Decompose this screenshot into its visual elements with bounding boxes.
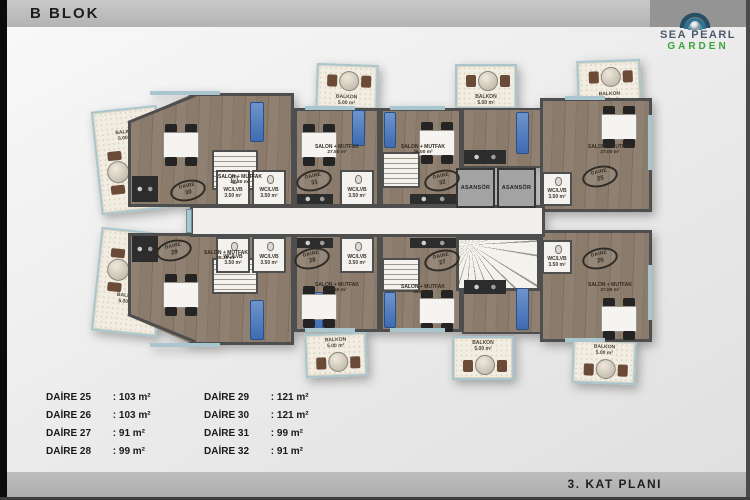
- balcony-label: BALKON5.00 m²: [457, 95, 515, 107]
- floor-plan: BALKON5.00 m² BALKON5.00 m² BALKON5.00 m…: [0, 0, 750, 500]
- legend-row: DAİRE 28 : 99 m²: [46, 446, 145, 457]
- dining-set: [596, 296, 642, 342]
- balcony-label: BALKON5.00 m²: [454, 341, 512, 353]
- dining-table: [163, 282, 199, 308]
- dining-chair: [323, 319, 335, 328]
- dining-table: [419, 298, 455, 324]
- window: [150, 91, 220, 95]
- legend-apartment-area: : 103 m²: [113, 392, 151, 403]
- dining-chair: [623, 331, 635, 340]
- balcony-chair: [497, 360, 507, 372]
- legend-apartment-area: : 91 m²: [113, 428, 145, 439]
- dining-chair: [323, 157, 335, 166]
- balcony-chair: [618, 364, 628, 376]
- legend-apartment-area: : 99 m²: [271, 428, 303, 439]
- wc-room: WC/LVB3.50 m²: [340, 237, 374, 273]
- window: [648, 265, 652, 320]
- dining-table: [601, 114, 637, 140]
- balcony-table: [106, 160, 130, 184]
- room-label-salon-30: SALON + MUTFAK28.30 m²: [208, 174, 272, 186]
- window: [565, 338, 605, 342]
- dining-chair: [303, 319, 315, 328]
- legend-apartment-area: : 121 m²: [271, 410, 309, 421]
- sofa: [352, 110, 365, 146]
- elevator-label: ASANSÖR: [502, 185, 532, 191]
- legend-apartment-name: DAİRE 31: [204, 428, 268, 439]
- balcony-bottom-2: BALKON5.00 m²: [452, 336, 514, 380]
- room-label-salon-31: SALON + MUTFAK27.50 m²: [298, 144, 376, 156]
- legend-apartment-name: DAİRE 26: [46, 410, 110, 421]
- legend-apartment-name: DAİRE 29: [204, 392, 268, 403]
- elevator-1: ASANSÖR: [456, 168, 495, 208]
- elevator-2: ASANSÖR: [497, 168, 536, 208]
- wc-room: WC/LVB3.50 m²: [542, 240, 572, 274]
- brochure-page: B BLOK SEA PEARL GARDEN BALKON5.00 m² BA…: [0, 0, 750, 500]
- room-label-salon-27: SALON + MUTFAK26.00 m²: [390, 284, 456, 296]
- kitchen-counter: [132, 236, 158, 262]
- kitchen-counter: [410, 194, 456, 204]
- legend-row: DAİRE 26 : 103 m²: [46, 410, 151, 421]
- dining-chair: [441, 155, 453, 164]
- legend-apartment-name: DAİRE 28: [46, 446, 110, 457]
- balcony-chair: [111, 248, 126, 258]
- legend-apartment-area: : 103 m²: [113, 410, 151, 421]
- room-label-salon-32: SALON + MUTFAK26.00 m²: [390, 144, 456, 156]
- kitchen-counter: [297, 194, 333, 204]
- balcony-chair: [350, 356, 360, 368]
- dining-chair: [185, 157, 197, 166]
- balcony-chair: [463, 360, 473, 372]
- floor-title: 3. KAT PLANI: [568, 477, 662, 491]
- kitchen-counter: [464, 280, 506, 294]
- toilet-icon: [355, 175, 362, 184]
- balcony-chair: [623, 70, 633, 82]
- balcony-table: [600, 67, 621, 88]
- kitchen-counter: [132, 176, 158, 202]
- legend-row: DAİRE 25 : 103 m²: [46, 392, 151, 403]
- balcony-chair: [500, 75, 510, 87]
- window: [305, 328, 355, 332]
- kitchen-counter: [464, 150, 506, 164]
- legend-row: DAİRE 31 : 99 m²: [204, 428, 303, 439]
- dining-chair: [303, 157, 315, 166]
- balcony-chair: [111, 185, 126, 195]
- legend-apartment-name: DAİRE 30: [204, 410, 268, 421]
- wc-room: WC/LVB3.50 m²: [542, 172, 572, 206]
- dining-set: [414, 120, 460, 166]
- balcony-chair: [361, 75, 371, 87]
- page-edge-right: [746, 0, 750, 500]
- dining-chair: [165, 157, 177, 166]
- sofa: [516, 112, 529, 154]
- legend-apartment-name: DAİRE 27: [46, 428, 110, 439]
- balcony-table: [339, 71, 360, 92]
- elevator-label: ASANSÖR: [461, 185, 491, 191]
- balcony-table: [106, 258, 130, 282]
- toilet-icon: [555, 177, 562, 186]
- window: [565, 96, 605, 100]
- room-label-salon-25: SALON + MUTFAK27.00 m²: [578, 144, 642, 156]
- balcony-top-1: BALKON5.00 m²: [315, 63, 379, 110]
- toilet-icon: [355, 242, 362, 251]
- balcony-label: BALKON5.00 m²: [306, 337, 364, 351]
- dining-table: [163, 132, 199, 158]
- dining-set: [158, 272, 204, 318]
- sofa: [384, 292, 396, 328]
- sofa: [250, 300, 264, 340]
- window: [390, 106, 445, 110]
- legend-apartment-name: DAİRE 25: [46, 392, 110, 403]
- sofa: [250, 102, 264, 142]
- window: [150, 343, 220, 347]
- dining-chair: [185, 307, 197, 316]
- wc-label: WC/LVB3.50 m²: [342, 188, 372, 199]
- wc-label: WC/LVB3.50 m²: [544, 257, 570, 268]
- wc-label: WC/LVB3.50 m²: [544, 189, 570, 200]
- balcony-chair: [107, 151, 122, 161]
- window: [648, 115, 652, 170]
- balcony-top-2: BALKON5.00 m²: [455, 64, 517, 109]
- balcony-chair: [107, 282, 122, 292]
- wc-label: WC/LVB3.50 m²: [254, 255, 284, 266]
- balcony-chair: [316, 357, 326, 369]
- balcony-bottom-1: BALKON5.00 m²: [304, 332, 367, 378]
- dining-set: [158, 122, 204, 168]
- legend-apartment-name: DAİRE 32: [204, 446, 268, 457]
- balcony-chair: [466, 75, 476, 87]
- balcony-label: BALKON5.00 m²: [574, 344, 634, 358]
- wc-label: WC/LVB3.50 m²: [254, 188, 284, 199]
- dining-table: [601, 306, 637, 332]
- dining-chair: [165, 307, 177, 316]
- legend-row: DAİRE 27 : 91 m²: [46, 428, 145, 439]
- balcony-bottom-3: BALKON5.00 m²: [571, 339, 636, 385]
- wc-room: WC/LVB3.50 m²: [340, 170, 374, 206]
- room-label-salon-28: SALON + MUTFAK27.50 m²: [298, 282, 376, 294]
- kitchen-counter: [410, 238, 456, 248]
- window: [390, 328, 445, 332]
- toilet-icon: [555, 245, 562, 254]
- balcony-table: [328, 352, 349, 373]
- legend-apartment-area: : 121 m²: [271, 392, 309, 403]
- sofa: [384, 112, 396, 148]
- page-edge-left: [0, 0, 7, 500]
- balcony-chair: [589, 71, 599, 83]
- dining-table: [301, 294, 337, 320]
- legend-apartment-area: : 91 m²: [271, 446, 303, 457]
- legend-apartment-area: : 99 m²: [113, 446, 145, 457]
- sofa: [516, 288, 529, 330]
- balcony-chair: [327, 74, 337, 86]
- dining-chair: [421, 155, 433, 164]
- balcony-chair: [584, 363, 594, 375]
- corridor: [190, 205, 545, 237]
- balcony-table: [478, 71, 498, 91]
- legend-row: DAİRE 29 : 121 m²: [204, 392, 309, 403]
- window: [305, 106, 355, 110]
- toilet-icon: [267, 242, 274, 251]
- balcony-table: [595, 359, 616, 380]
- wc-label: WC/LVB3.50 m²: [342, 255, 372, 266]
- legend-row: DAİRE 32 : 91 m²: [204, 446, 303, 457]
- corridor-window: [186, 209, 192, 233]
- legend-row: DAİRE 30 : 121 m²: [204, 410, 309, 421]
- room-label-salon-29: SALON + MUTFAK28.30 m²: [194, 250, 258, 262]
- room-label-salon-26: SALON + MUTFAK27.00 m²: [578, 282, 642, 294]
- balcony-table: [475, 355, 495, 375]
- wc-label: WC/LVB3.50 m²: [218, 188, 248, 199]
